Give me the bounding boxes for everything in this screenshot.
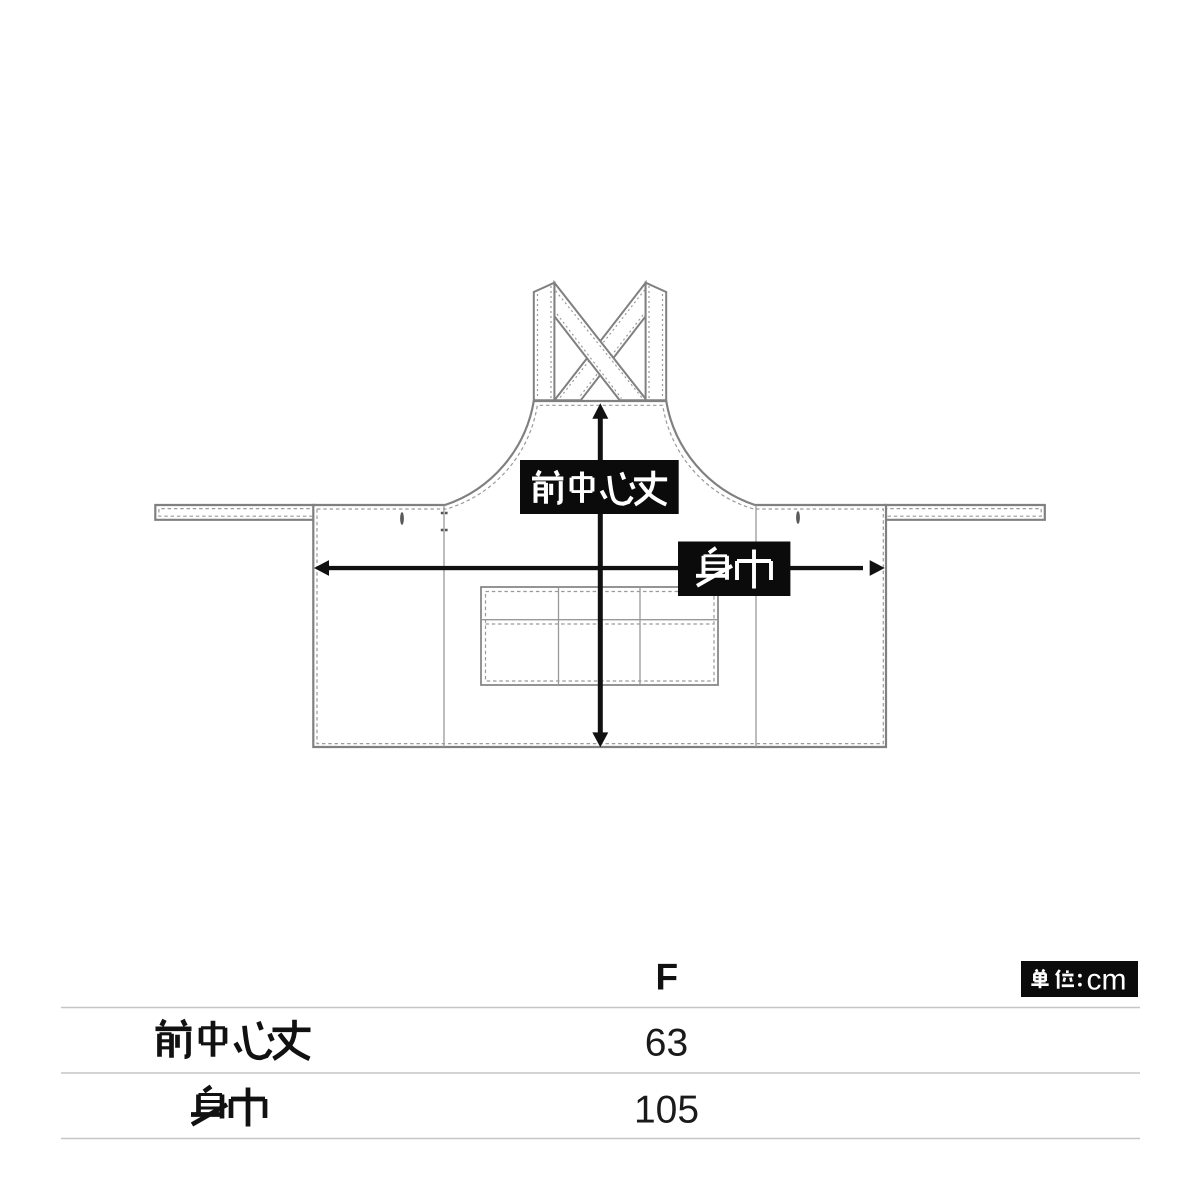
svg-text:63: 63 [645, 1021, 688, 1064]
svg-text:F: F [655, 957, 678, 998]
svg-text:105: 105 [634, 1089, 699, 1132]
svg-text:cm: cm [1087, 963, 1127, 996]
